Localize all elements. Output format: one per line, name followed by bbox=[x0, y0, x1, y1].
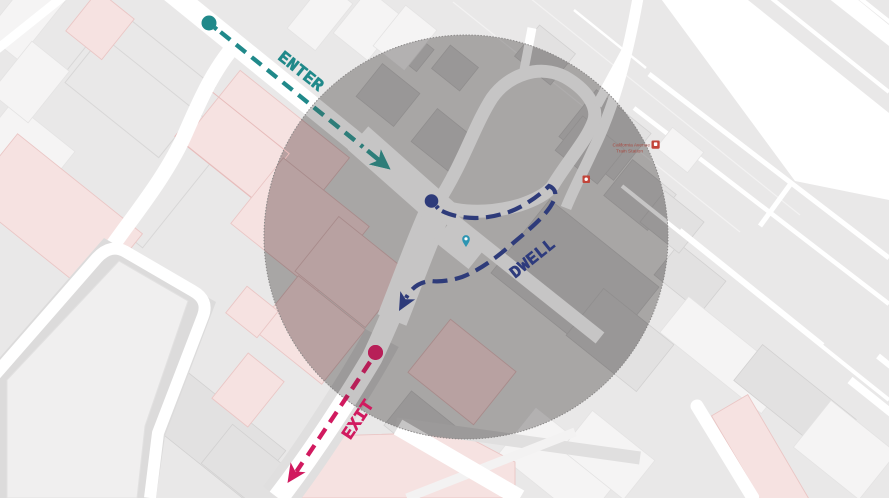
svg-text:Train Station: Train Station bbox=[616, 149, 643, 155]
svg-text:California Avenue: California Avenue bbox=[612, 143, 650, 149]
